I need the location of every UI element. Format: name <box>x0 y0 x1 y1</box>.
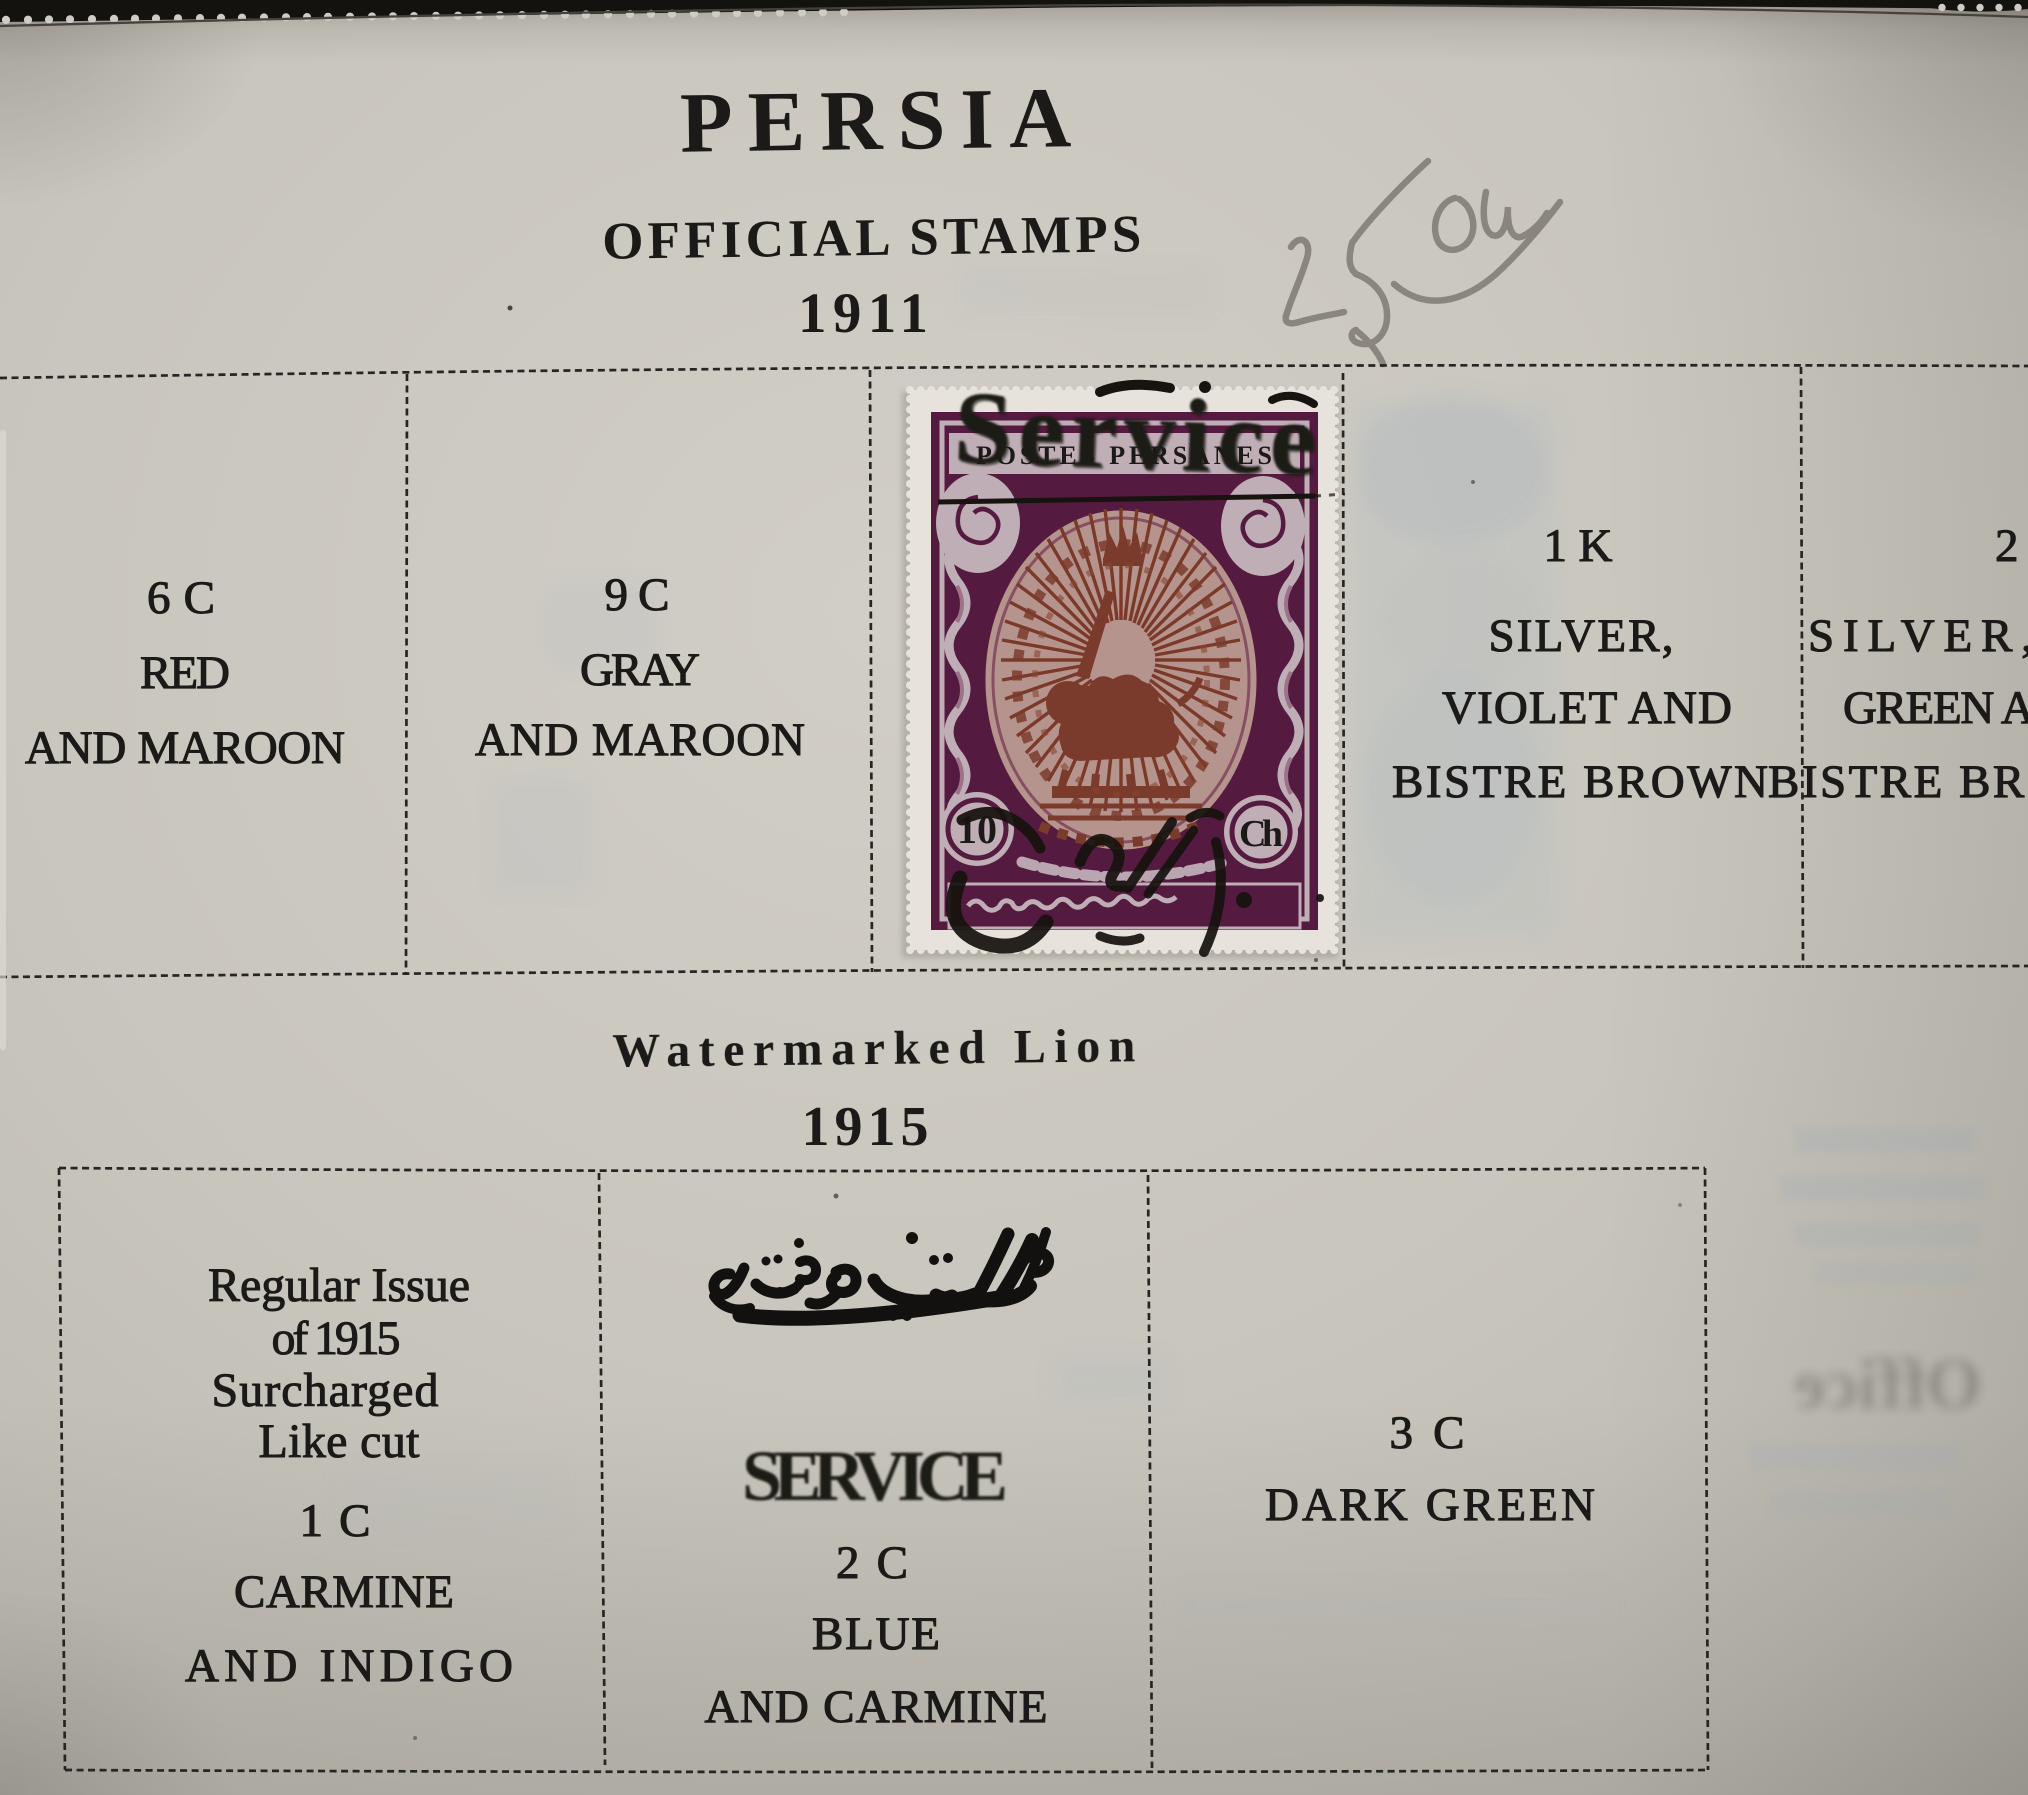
svg-text:1 K: 1 K <box>1544 520 1613 572</box>
svg-text:Like cut: Like cut <box>259 1415 421 1468</box>
svg-text:3 C: 3 C <box>1390 1407 1465 1459</box>
svg-text:DARK GREEN: DARK GREEN <box>1265 1479 1595 1531</box>
svg-text:1911: 1911 <box>798 282 934 345</box>
svg-text:AND MAROON: AND MAROON <box>25 722 345 774</box>
svg-text:Office: Office <box>1794 1344 1982 1424</box>
svg-text:Surcharged: Surcharged <box>212 1364 439 1417</box>
svg-text:AND INDIGO: AND INDIGO <box>185 1640 513 1692</box>
svg-text:2 K: 2 K <box>1995 520 2028 572</box>
svg-text:2 C: 2 C <box>836 1537 908 1589</box>
svg-text:BLUE: BLUE <box>812 1608 940 1660</box>
svg-text:AND MAROON: AND MAROON <box>475 714 805 766</box>
svg-text:GRAY: GRAY <box>580 644 700 696</box>
svg-text:SILVER,: SILVER, <box>1489 610 1674 662</box>
svg-text:CARMINE: CARMINE <box>234 1566 454 1618</box>
svg-text:BISTRE BROWN: BISTRE BROWN <box>1392 756 1768 808</box>
svg-text:GREEN AND: GREEN AND <box>1843 682 2028 734</box>
svg-text:BISTRE BROWN: BISTRE BROWN <box>1768 756 2028 808</box>
svg-text:6 C: 6 C <box>147 572 215 624</box>
svg-text:of 1915: of 1915 <box>272 1312 401 1365</box>
svg-text:1 C: 1 C <box>300 1495 371 1547</box>
svg-text:Regular Issue: Regular Issue <box>208 1259 470 1312</box>
svg-text:RED: RED <box>140 647 230 699</box>
svg-text:SERVICE: SERVICE <box>742 1436 1008 1516</box>
svg-text:AND CARMINE: AND CARMINE <box>705 1681 1048 1733</box>
svg-text:9 C: 9 C <box>605 569 670 621</box>
svg-text:1915: 1915 <box>802 1096 935 1158</box>
svg-text:Ch: Ch <box>1239 813 1283 855</box>
svg-text:VIOLET AND: VIOLET AND <box>1442 682 1732 734</box>
